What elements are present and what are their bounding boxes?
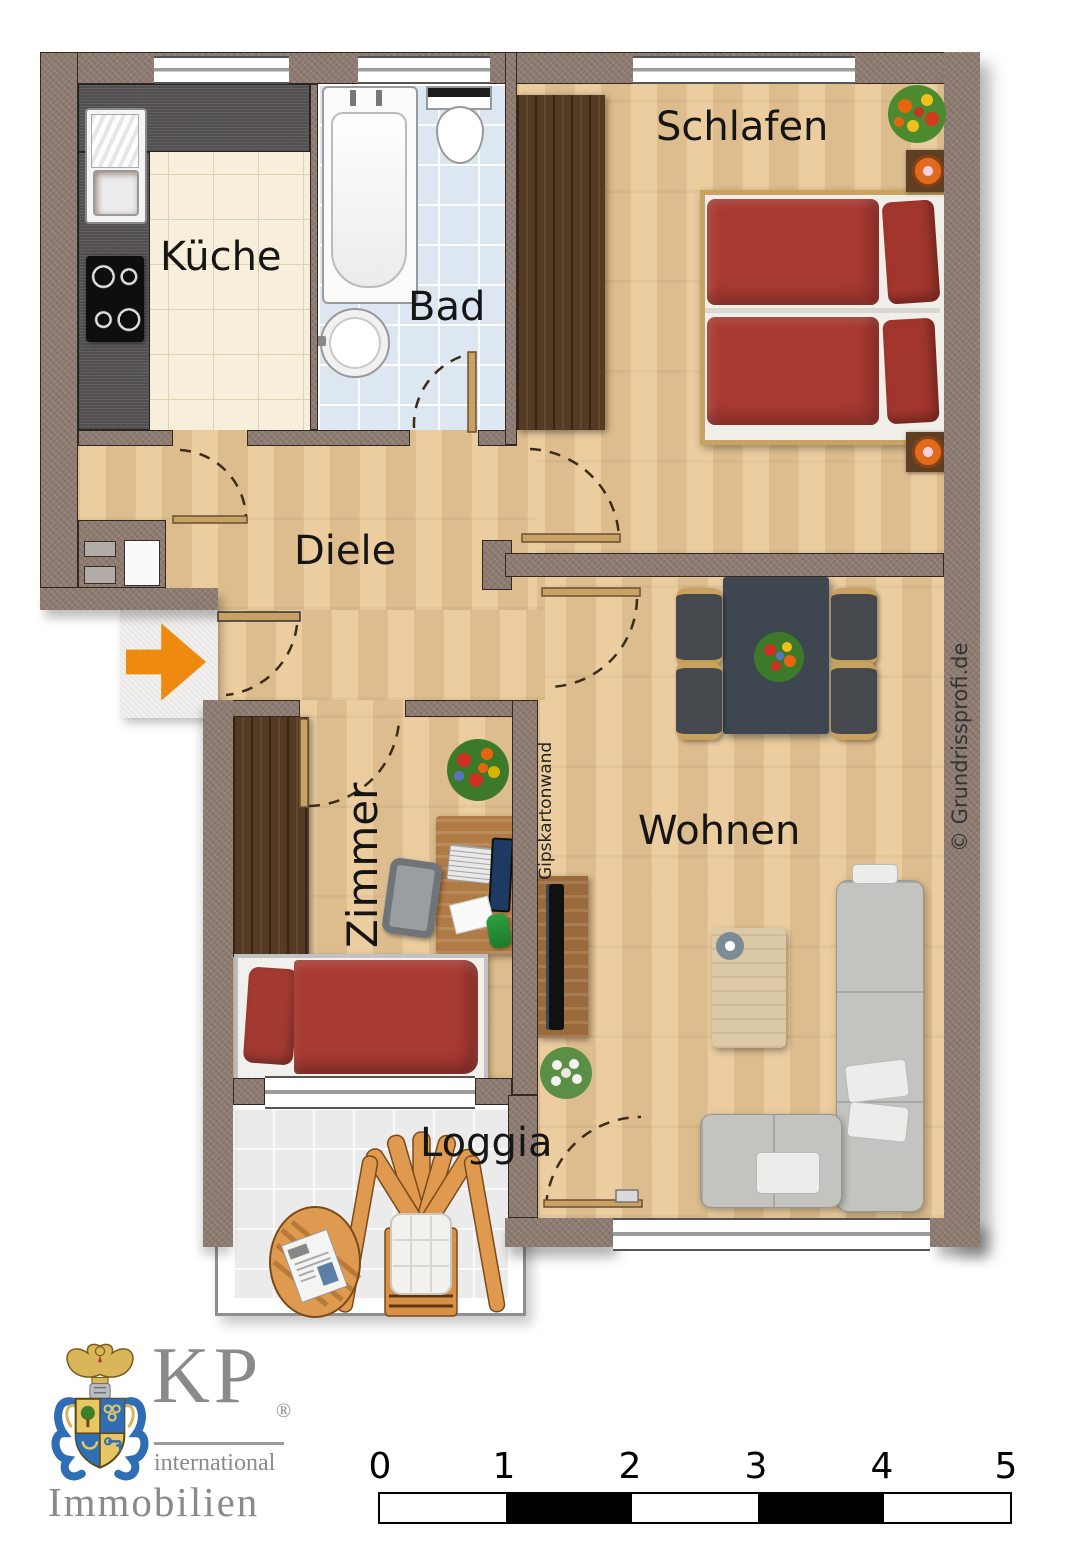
registered-mark: ® xyxy=(276,1400,291,1423)
wall-gipskarton-partition xyxy=(512,700,538,1095)
scale-segment xyxy=(884,1494,1010,1522)
scale-tick-2: 2 xyxy=(619,1446,642,1487)
cooktop-icon xyxy=(86,256,144,342)
partition-label: Gipskartonwand xyxy=(536,742,556,880)
scale-bar-segments xyxy=(378,1492,1012,1524)
wall-wohnen-bottom-left xyxy=(505,1218,613,1247)
desk-chair xyxy=(381,857,443,939)
bathtub-tap xyxy=(376,90,382,106)
scale-bar: 0 1 2 3 4 5 xyxy=(378,1446,1012,1526)
coat-of-arms-icon xyxy=(48,1340,152,1492)
shaft-cell xyxy=(84,541,116,557)
kitchen-sink-basin xyxy=(93,170,139,216)
room-label-zimmer: Zimmer xyxy=(338,783,387,948)
wall-zimmer-window-stub-left xyxy=(233,1078,265,1105)
bathtub-basin xyxy=(331,112,407,288)
wall-zimmer-window-stub-right xyxy=(475,1078,512,1105)
bed-blanket xyxy=(707,199,879,305)
bed-center-gap xyxy=(705,308,940,313)
kitchen-sink-drainboard xyxy=(91,114,139,168)
laptop-keyboard-icon xyxy=(446,844,494,884)
double-bed xyxy=(700,190,955,445)
bed-pillow xyxy=(243,966,300,1065)
dining-chair xyxy=(676,662,722,740)
sofa-chaise xyxy=(836,880,924,1212)
bathroom-sink xyxy=(320,308,390,378)
wall-bad-schlafen xyxy=(505,52,517,445)
decor-bowl xyxy=(716,932,744,960)
room-label-loggia: Loggia xyxy=(420,1120,552,1166)
wall-exterior-zimmer-left xyxy=(203,700,233,1247)
window-kueche xyxy=(154,56,289,84)
window-bad xyxy=(358,56,490,84)
bed-blanket xyxy=(294,960,478,1074)
scale-tick-5: 5 xyxy=(995,1446,1018,1487)
wall-exterior-left xyxy=(40,52,78,588)
room-label-wohnen: Wohnen xyxy=(638,808,800,854)
room-label-schlafen: Schlafen xyxy=(656,104,828,150)
bathtub-tap xyxy=(350,90,356,106)
wall-wohnen-bottom-right xyxy=(930,1218,980,1247)
scale-tick-4: 4 xyxy=(871,1446,894,1487)
logo-divider xyxy=(154,1442,284,1445)
scale-segment xyxy=(758,1494,884,1522)
copyright-label: © Grundrissprofi.de xyxy=(948,643,972,852)
window-wohnen-balcony xyxy=(613,1218,930,1251)
sofa-cushion xyxy=(844,1058,910,1103)
scale-segment xyxy=(632,1494,758,1522)
scale-tick-0: 0 xyxy=(369,1446,392,1487)
scale-tick-1: 1 xyxy=(493,1446,516,1487)
dining-chair xyxy=(831,662,877,740)
logo-title: Immobilien xyxy=(48,1478,259,1526)
bed-pillow xyxy=(882,318,939,425)
bathtub xyxy=(322,86,418,304)
kitchen-sink xyxy=(85,108,147,224)
logo-subtitle: international xyxy=(154,1450,275,1477)
sofa-cushion xyxy=(756,1152,820,1194)
bed-blanket xyxy=(707,317,879,425)
window-schlafen xyxy=(633,56,855,84)
window-zimmer xyxy=(265,1076,475,1109)
shaft-cell xyxy=(84,566,116,584)
dining-chair xyxy=(676,588,722,666)
bed-pillow xyxy=(882,199,941,304)
shaft-cell xyxy=(124,540,160,586)
wall-kueche-bottom xyxy=(78,430,173,446)
floor-plan-canvas: Küche Bad Schlafen Diele Wohnen Loggia Z… xyxy=(0,0,1072,1547)
schlafen-wardrobe xyxy=(517,95,605,430)
room-label-diele: Diele xyxy=(294,528,396,574)
dining-chair xyxy=(831,588,877,666)
dining-table xyxy=(723,577,829,734)
sofa-cushion xyxy=(852,864,898,884)
room-label-bad: Bad xyxy=(408,284,485,330)
sofa-cushion xyxy=(846,1101,909,1143)
logo-monogram: KP xyxy=(152,1336,262,1416)
scale-tick-3: 3 xyxy=(745,1446,768,1487)
wall-exterior-bottom-left xyxy=(40,588,218,610)
wall-kueche-bad-bottom xyxy=(247,430,410,446)
scale-segment xyxy=(380,1494,506,1522)
zimmer-wardrobe xyxy=(233,717,309,957)
diele-floor-lower xyxy=(218,610,537,700)
single-bed xyxy=(234,954,488,1088)
company-logo: KP ® international Immobilien xyxy=(48,1336,310,1532)
laptop-screen-icon xyxy=(488,837,514,912)
wall-kueche-bad-divider xyxy=(310,84,318,430)
wall-schlafen-wohnen xyxy=(505,553,944,577)
room-label-kueche: Küche xyxy=(160,234,282,280)
scale-segment xyxy=(506,1494,632,1522)
tv-icon xyxy=(546,884,564,1030)
